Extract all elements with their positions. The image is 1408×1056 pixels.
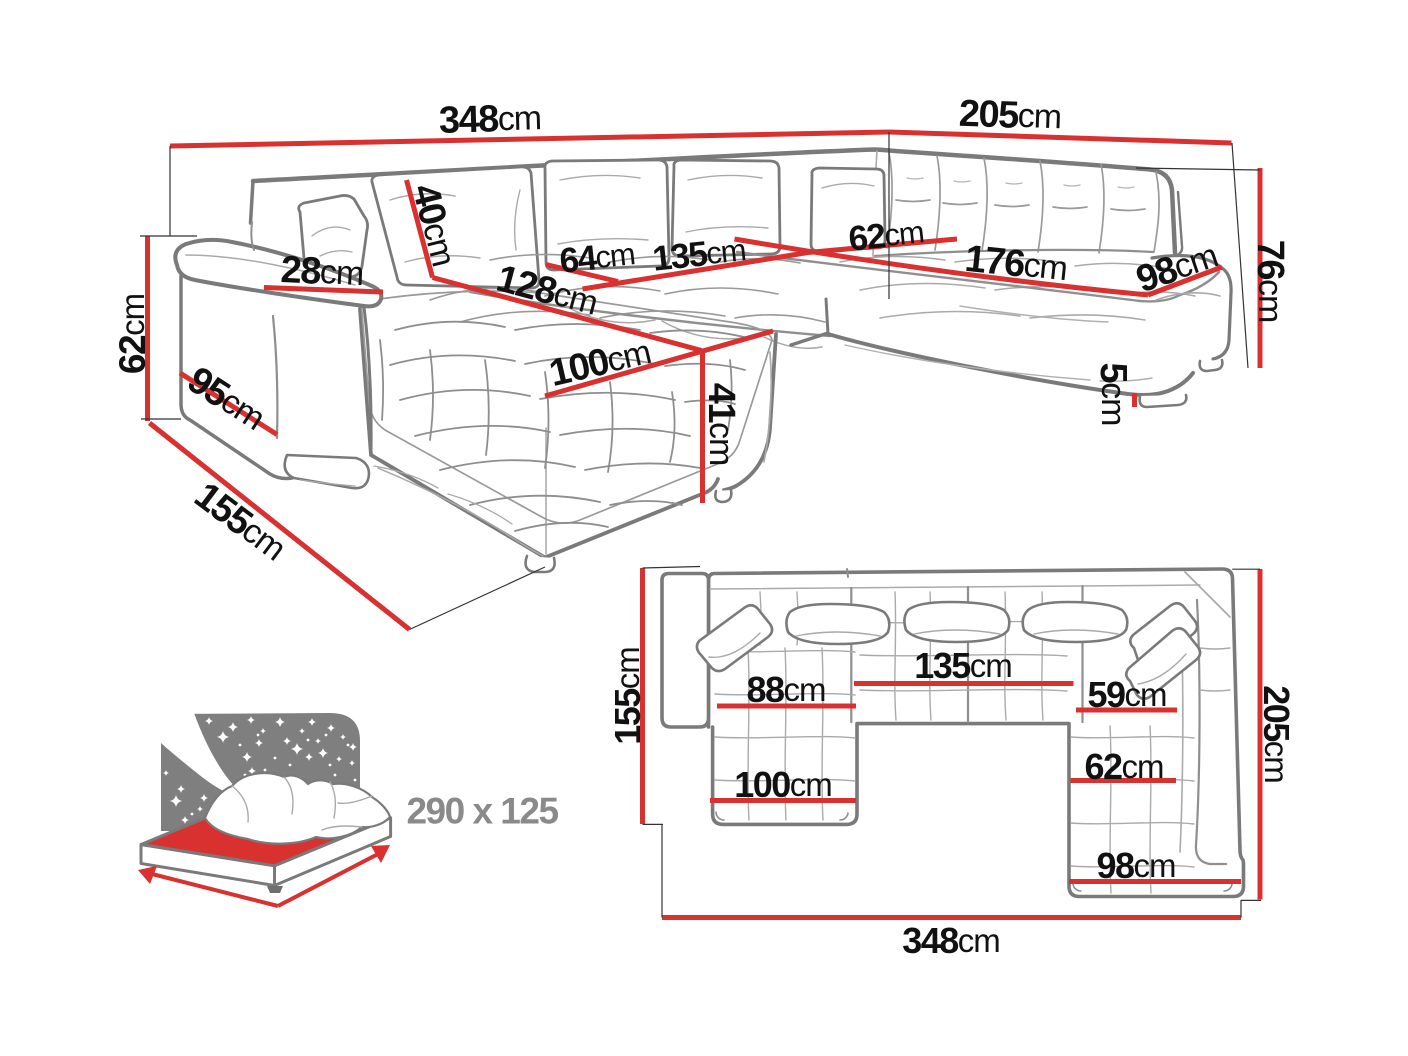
svg-text:348cm: 348cm [438, 97, 541, 142]
svg-text:98cm: 98cm [1096, 845, 1175, 886]
svg-text:41cm: 41cm [700, 383, 742, 466]
svg-text:290 x 125: 290 x 125 [406, 791, 558, 832]
svg-text:205cm: 205cm [958, 93, 1062, 139]
svg-text:28cm: 28cm [280, 249, 365, 295]
svg-text:62cm: 62cm [112, 294, 153, 374]
svg-text:5cm: 5cm [1092, 363, 1134, 426]
svg-text:348cm: 348cm [902, 920, 1000, 961]
svg-text:88cm: 88cm [746, 669, 825, 710]
svg-text:155cm: 155cm [607, 647, 648, 745]
svg-text:135cm: 135cm [914, 645, 1012, 686]
svg-text:76cm: 76cm [1249, 240, 1291, 323]
svg-text:59cm: 59cm [1087, 674, 1166, 715]
svg-text:205cm: 205cm [1257, 685, 1298, 783]
svg-text:100cm: 100cm [734, 764, 832, 805]
svg-text:62cm: 62cm [1084, 746, 1163, 787]
